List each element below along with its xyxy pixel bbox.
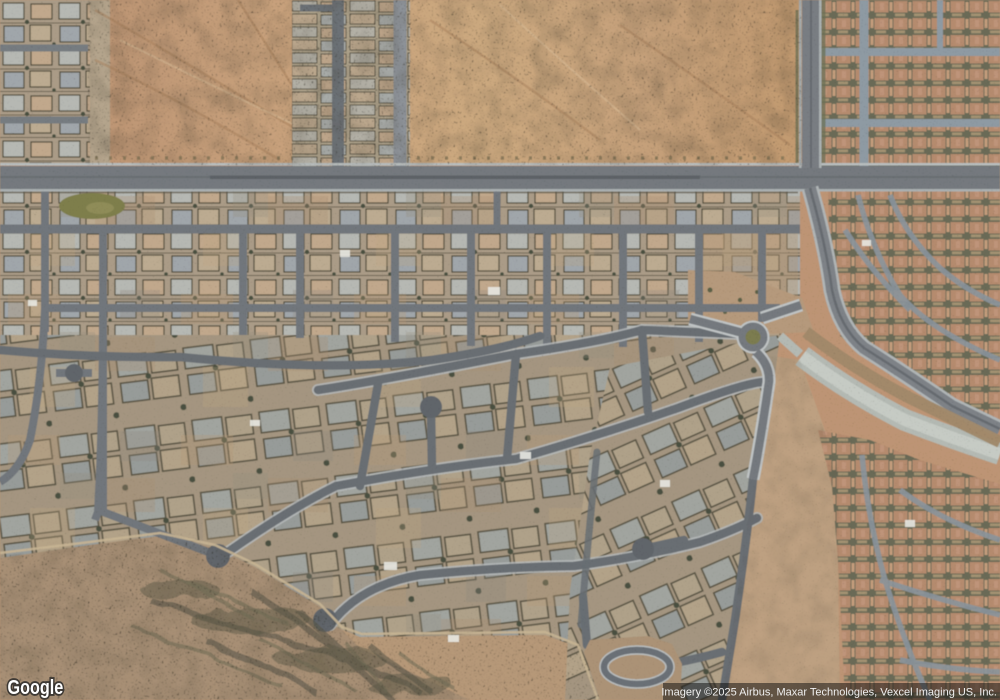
svg-text:Imagery ©2025 Airbus, Maxar Te: Imagery ©2025 Airbus, Maxar Technologies… <box>661 687 997 699</box>
svg-text:Google: Google <box>8 675 64 698</box>
